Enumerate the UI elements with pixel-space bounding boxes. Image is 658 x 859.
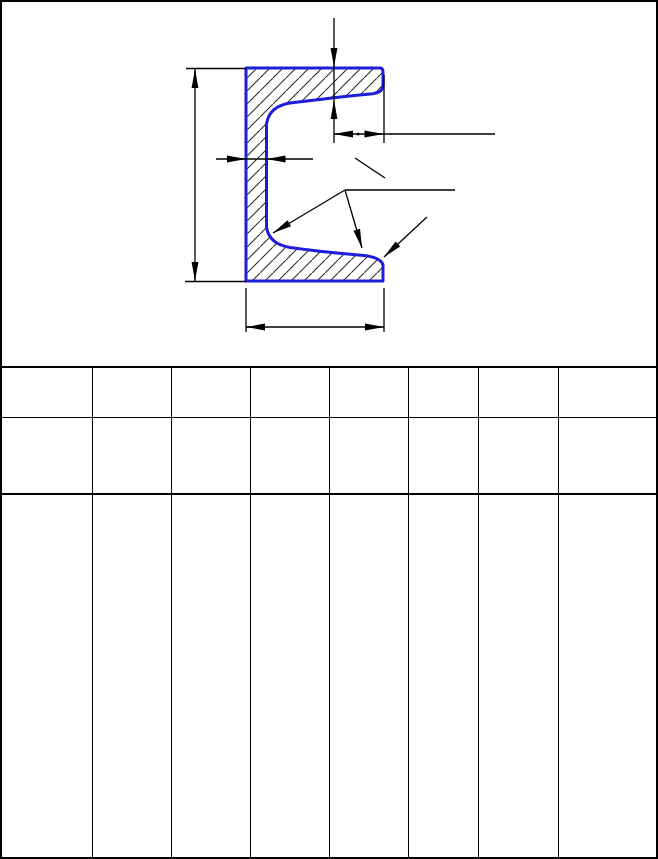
- arrow-left-icon: [246, 324, 265, 331]
- table-cell: [559, 495, 658, 859]
- table-cell: [172, 368, 251, 418]
- drawing-sheet: [0, 0, 658, 859]
- spec-table: [0, 366, 658, 859]
- table-cell: [0, 495, 93, 859]
- leader-arrow-icon: [353, 229, 365, 249]
- arrow-down-icon: [331, 48, 338, 67]
- leader-arrow-icon: [271, 220, 291, 236]
- dimension-center-dot: [356, 132, 359, 135]
- table-cell: [479, 495, 559, 859]
- arrow-down-icon: [192, 262, 199, 281]
- height-dimension: [185, 69, 246, 282]
- arrow-up-icon: [192, 69, 199, 88]
- arrow-left-icon: [334, 131, 353, 138]
- table-cell: [251, 418, 330, 495]
- flange-width-dimension: [246, 288, 384, 332]
- table-cell: [251, 495, 330, 859]
- arrow-right-icon: [227, 156, 246, 163]
- arrow-up-icon: [331, 100, 338, 119]
- slope-reference-line: [355, 158, 385, 178]
- engineering-drawing-canvas: [0, 0, 658, 366]
- dimension-lines: [185, 18, 495, 332]
- table-cell: [0, 368, 93, 418]
- table-cell: [0, 418, 93, 495]
- table-cell: [330, 495, 409, 859]
- table-cell: [409, 495, 479, 859]
- table-cell: [93, 368, 172, 418]
- table-cell: [251, 368, 330, 418]
- table-cell: [409, 418, 479, 495]
- table-cell: [559, 418, 658, 495]
- arrow-right-icon: [365, 131, 384, 138]
- table-cell: [330, 368, 409, 418]
- table-cell: [479, 368, 559, 418]
- table-cell: [559, 368, 658, 418]
- arrow-right-icon: [365, 324, 384, 331]
- arrow-left-icon: [267, 156, 286, 163]
- table-cell: [479, 418, 559, 495]
- table-cell: [330, 418, 409, 495]
- table-cell: [172, 495, 251, 859]
- channel-profile-shape: [246, 68, 383, 281]
- table-cell: [93, 495, 172, 859]
- table-cell: [172, 418, 251, 495]
- table-cell: [93, 418, 172, 495]
- table-cell: [409, 368, 479, 418]
